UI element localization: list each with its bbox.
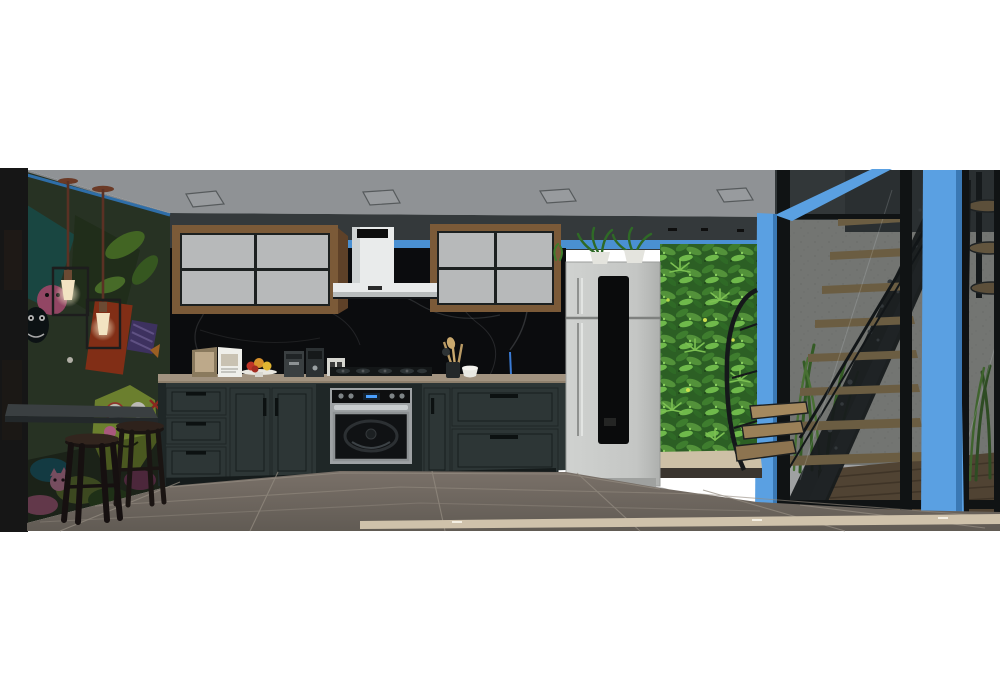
white-bowl [462, 366, 478, 378]
oven-display [366, 395, 377, 398]
screenshot-canvas [0, 0, 1000, 700]
blue-utensil [510, 352, 511, 375]
upper-cabinet-left [172, 225, 348, 314]
glazed-wall-zone [775, 170, 1000, 522]
bar-ledge [5, 404, 158, 424]
espresso-machine [284, 351, 304, 377]
fridge-dispenser [604, 418, 616, 426]
kitchen-render [0, 0, 1000, 700]
oven-handle [334, 405, 408, 410]
drawer-stack-left [166, 388, 226, 478]
cookbook-on-stand [192, 347, 242, 377]
letterbox-top [0, 0, 1000, 168]
upper-cabinet-right [430, 224, 561, 312]
hood-vent [357, 229, 388, 238]
wall-oven [330, 388, 412, 464]
green-living-wall [653, 244, 762, 478]
cabinet-door-narrow [424, 388, 450, 476]
letterbox-bottom [0, 532, 1000, 700]
curb-shadow [653, 468, 762, 478]
gas-cooktop [330, 367, 432, 376]
hood-brand-label [368, 286, 382, 290]
coffee-grinder [306, 348, 324, 377]
refrigerator [557, 228, 669, 495]
left-dark-wall [0, 168, 28, 532]
drawer-stack-right [452, 388, 558, 472]
